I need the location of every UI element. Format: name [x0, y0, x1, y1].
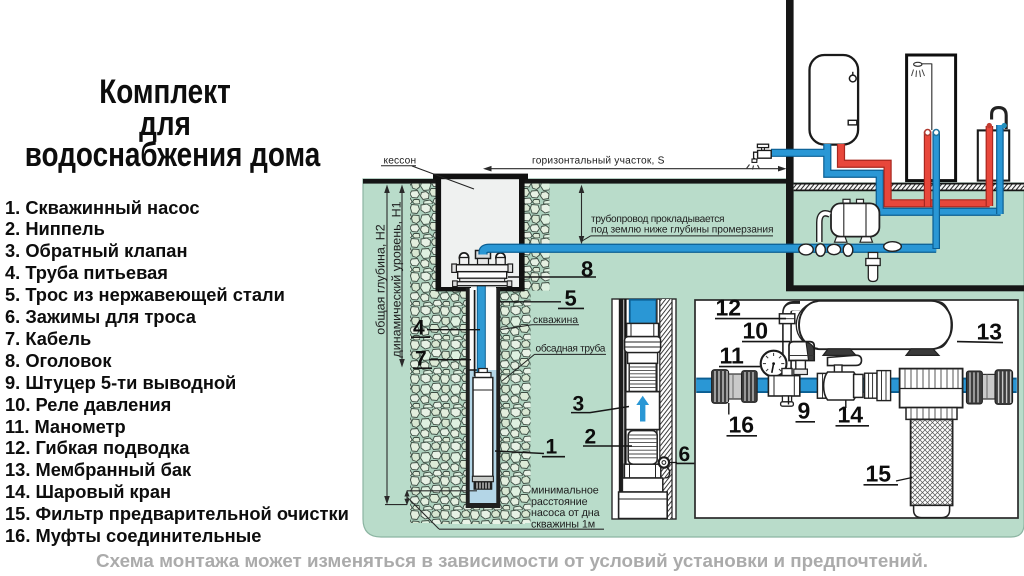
svg-text:15: 15	[866, 461, 892, 487]
svg-text:5: 5	[565, 286, 577, 311]
svg-text:2: 2	[585, 426, 597, 449]
svg-text:скважины 1м: скважины 1м	[531, 518, 595, 530]
svg-text:под землю ниже глубины промерз: под землю ниже глубины промерзания	[591, 225, 774, 236]
svg-text:14: 14	[838, 402, 864, 428]
svg-text:10: 10	[743, 318, 769, 344]
svg-text:11: 11	[720, 343, 745, 369]
svg-text:7: 7	[415, 348, 427, 371]
svg-text:насоса от дна: насоса от дна	[531, 507, 600, 519]
svg-text:минимальное: минимальное	[531, 485, 599, 497]
svg-text:16: 16	[729, 412, 755, 438]
svg-text:1: 1	[546, 436, 558, 459]
svg-text:6: 6	[679, 443, 691, 466]
svg-text:горизонтальный участок, S: горизонтальный участок, S	[532, 156, 665, 167]
svg-text:12: 12	[716, 295, 742, 321]
svg-text:обсадная труба: обсадная труба	[536, 344, 606, 355]
svg-text:9: 9	[798, 398, 811, 424]
svg-text:кессон: кессон	[384, 156, 417, 167]
svg-text:трубопровод прокладывается: трубопровод прокладывается	[591, 214, 724, 225]
svg-text:4: 4	[413, 317, 425, 340]
svg-text:расстояние: расстояние	[531, 496, 588, 508]
svg-text:общая глубина, Н2: общая глубина, Н2	[374, 224, 388, 335]
svg-text:динамический уровень, Н1: динамический уровень, Н1	[390, 201, 404, 357]
svg-text:13: 13	[977, 319, 1003, 345]
